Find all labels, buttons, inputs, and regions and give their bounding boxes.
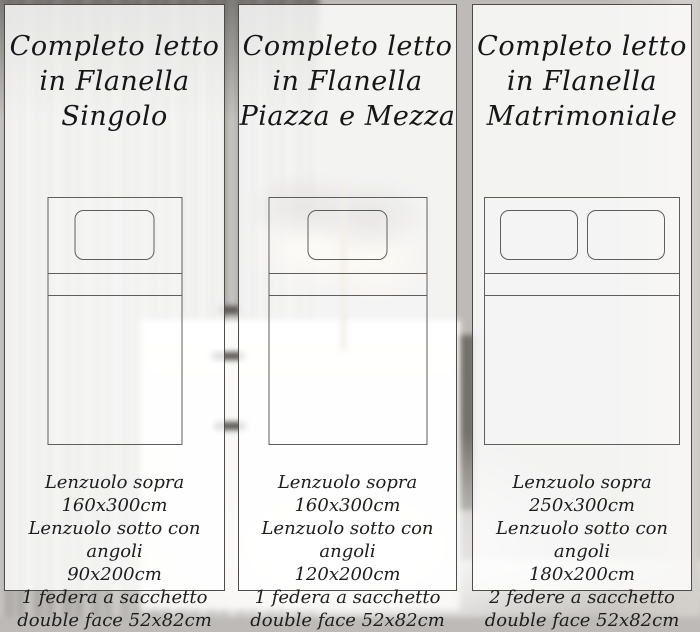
pillow-icon bbox=[587, 210, 665, 260]
bed-diagram-matrimoniale bbox=[484, 197, 680, 445]
title-line: in Flanella bbox=[239, 64, 456, 99]
title-line: Singolo bbox=[5, 99, 224, 134]
spec-line: Lenzuolo sotto con angoli bbox=[5, 517, 224, 563]
sheet-fold-line bbox=[484, 295, 680, 296]
spec-line: 180x200cm bbox=[473, 563, 691, 586]
title-line: Completo letto bbox=[473, 29, 691, 64]
title-line: Piazza e Mezza bbox=[239, 99, 456, 134]
spec-list: Lenzuolo sopra 250x300cm Lenzuolo sotto … bbox=[473, 471, 691, 632]
spec-line: double face 52x82cm bbox=[239, 609, 456, 632]
pillow-icon bbox=[308, 210, 388, 260]
spec-line: Lenzuolo sopra 160x300cm bbox=[239, 471, 456, 517]
sheet-fold-line bbox=[47, 273, 182, 274]
pillow-icon bbox=[500, 210, 578, 260]
bed-diagram-piazza-e-mezza bbox=[268, 197, 427, 445]
title-line: in Flanella bbox=[5, 64, 224, 99]
spec-line: 90x200cm bbox=[5, 563, 224, 586]
spec-line: Lenzuolo sotto con angoli bbox=[239, 517, 456, 563]
spec-line: double face 52x82cm bbox=[5, 609, 224, 632]
spec-list: Lenzuolo sopra 160x300cm Lenzuolo sotto … bbox=[239, 471, 456, 632]
pillow-row bbox=[269, 210, 426, 260]
panel-title: Completo letto in Flanella Piazza e Mezz… bbox=[239, 5, 456, 134]
sheet-fold-line bbox=[268, 273, 427, 274]
title-line: Matrimoniale bbox=[473, 99, 691, 134]
spec-line: 1 federa a sacchetto bbox=[5, 586, 224, 609]
panel-title: Completo letto in Flanella Singolo bbox=[5, 5, 224, 134]
spec-line: 2 federe a sacchetto bbox=[473, 586, 691, 609]
spec-line: Lenzuolo sopra 250x300cm bbox=[473, 471, 691, 517]
size-panel-piazza-e-mezza: Completo letto in Flanella Piazza e Mezz… bbox=[238, 4, 457, 591]
spec-line: double face 52x82cm bbox=[473, 609, 691, 632]
spec-line: 120x200cm bbox=[239, 563, 456, 586]
spec-line: 1 federa a sacchetto bbox=[239, 586, 456, 609]
title-line: Completo letto bbox=[5, 29, 224, 64]
spec-list: Lenzuolo sopra 160x300cm Lenzuolo sotto … bbox=[5, 471, 224, 632]
bed-diagram-singolo bbox=[47, 197, 182, 445]
title-line: Completo letto bbox=[239, 29, 456, 64]
pillow-row bbox=[485, 210, 679, 260]
pillow-icon bbox=[75, 210, 155, 260]
product-size-infographic: { "colors":{ "panel_fill":"rgba(255,255,… bbox=[0, 0, 700, 607]
sheet-fold-line bbox=[47, 295, 182, 296]
panel-title: Completo letto in Flanella Matrimoniale bbox=[473, 5, 691, 134]
sheet-fold-line bbox=[484, 273, 680, 274]
title-line: in Flanella bbox=[473, 64, 691, 99]
sheet-fold-line bbox=[268, 295, 427, 296]
size-panel-matrimoniale: Completo letto in Flanella Matrimoniale … bbox=[472, 4, 692, 591]
spec-line: Lenzuolo sopra 160x300cm bbox=[5, 471, 224, 517]
size-panel-singolo: Completo letto in Flanella Singolo Lenzu… bbox=[4, 4, 225, 591]
spec-line: Lenzuolo sotto con angoli bbox=[473, 517, 691, 563]
pillow-row bbox=[48, 210, 181, 260]
